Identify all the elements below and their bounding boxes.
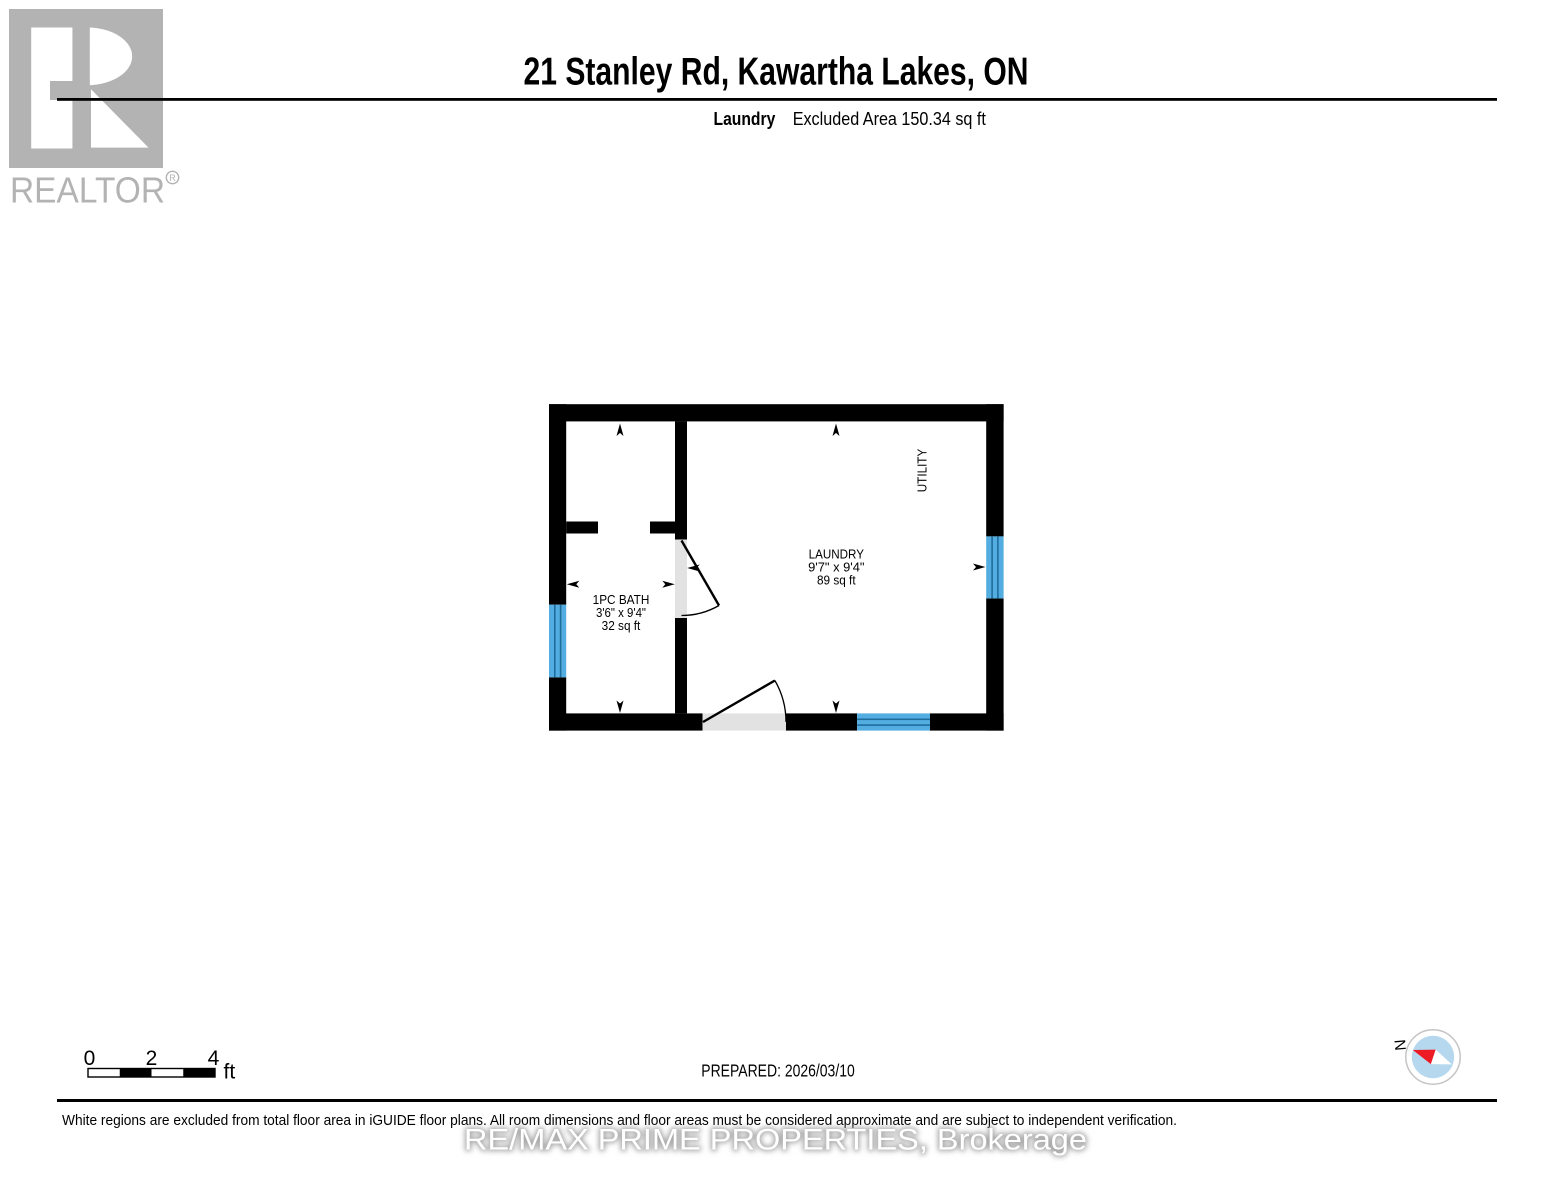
svg-text:32 sq ft: 32 sq ft bbox=[602, 618, 641, 633]
svg-text:REALTOR: REALTOR bbox=[10, 170, 165, 211]
svg-text:R: R bbox=[169, 173, 176, 183]
svg-text:2: 2 bbox=[146, 1047, 158, 1070]
svg-text:0: 0 bbox=[84, 1047, 96, 1070]
svg-text:89 sq ft: 89 sq ft bbox=[817, 573, 856, 588]
svg-text:UTILITY: UTILITY bbox=[915, 448, 930, 492]
svg-text:Excluded Area 150.34 sq ft: Excluded Area 150.34 sq ft bbox=[793, 108, 986, 129]
svg-text:ft: ft bbox=[224, 1061, 236, 1084]
svg-text:Laundry: Laundry bbox=[714, 108, 776, 129]
svg-text:PREPARED: 2026/03/10: PREPARED: 2026/03/10 bbox=[701, 1061, 855, 1081]
svg-text:N: N bbox=[1392, 1039, 1410, 1052]
svg-text:RE/MAX PRIME PROPERTIES, Broke: RE/MAX PRIME PROPERTIES, Brokerage bbox=[464, 1124, 1087, 1157]
svg-text:4: 4 bbox=[208, 1047, 220, 1070]
svg-text:21 Stanley Rd, Kawartha Lakes,: 21 Stanley Rd, Kawartha Lakes, ON bbox=[524, 51, 1029, 94]
